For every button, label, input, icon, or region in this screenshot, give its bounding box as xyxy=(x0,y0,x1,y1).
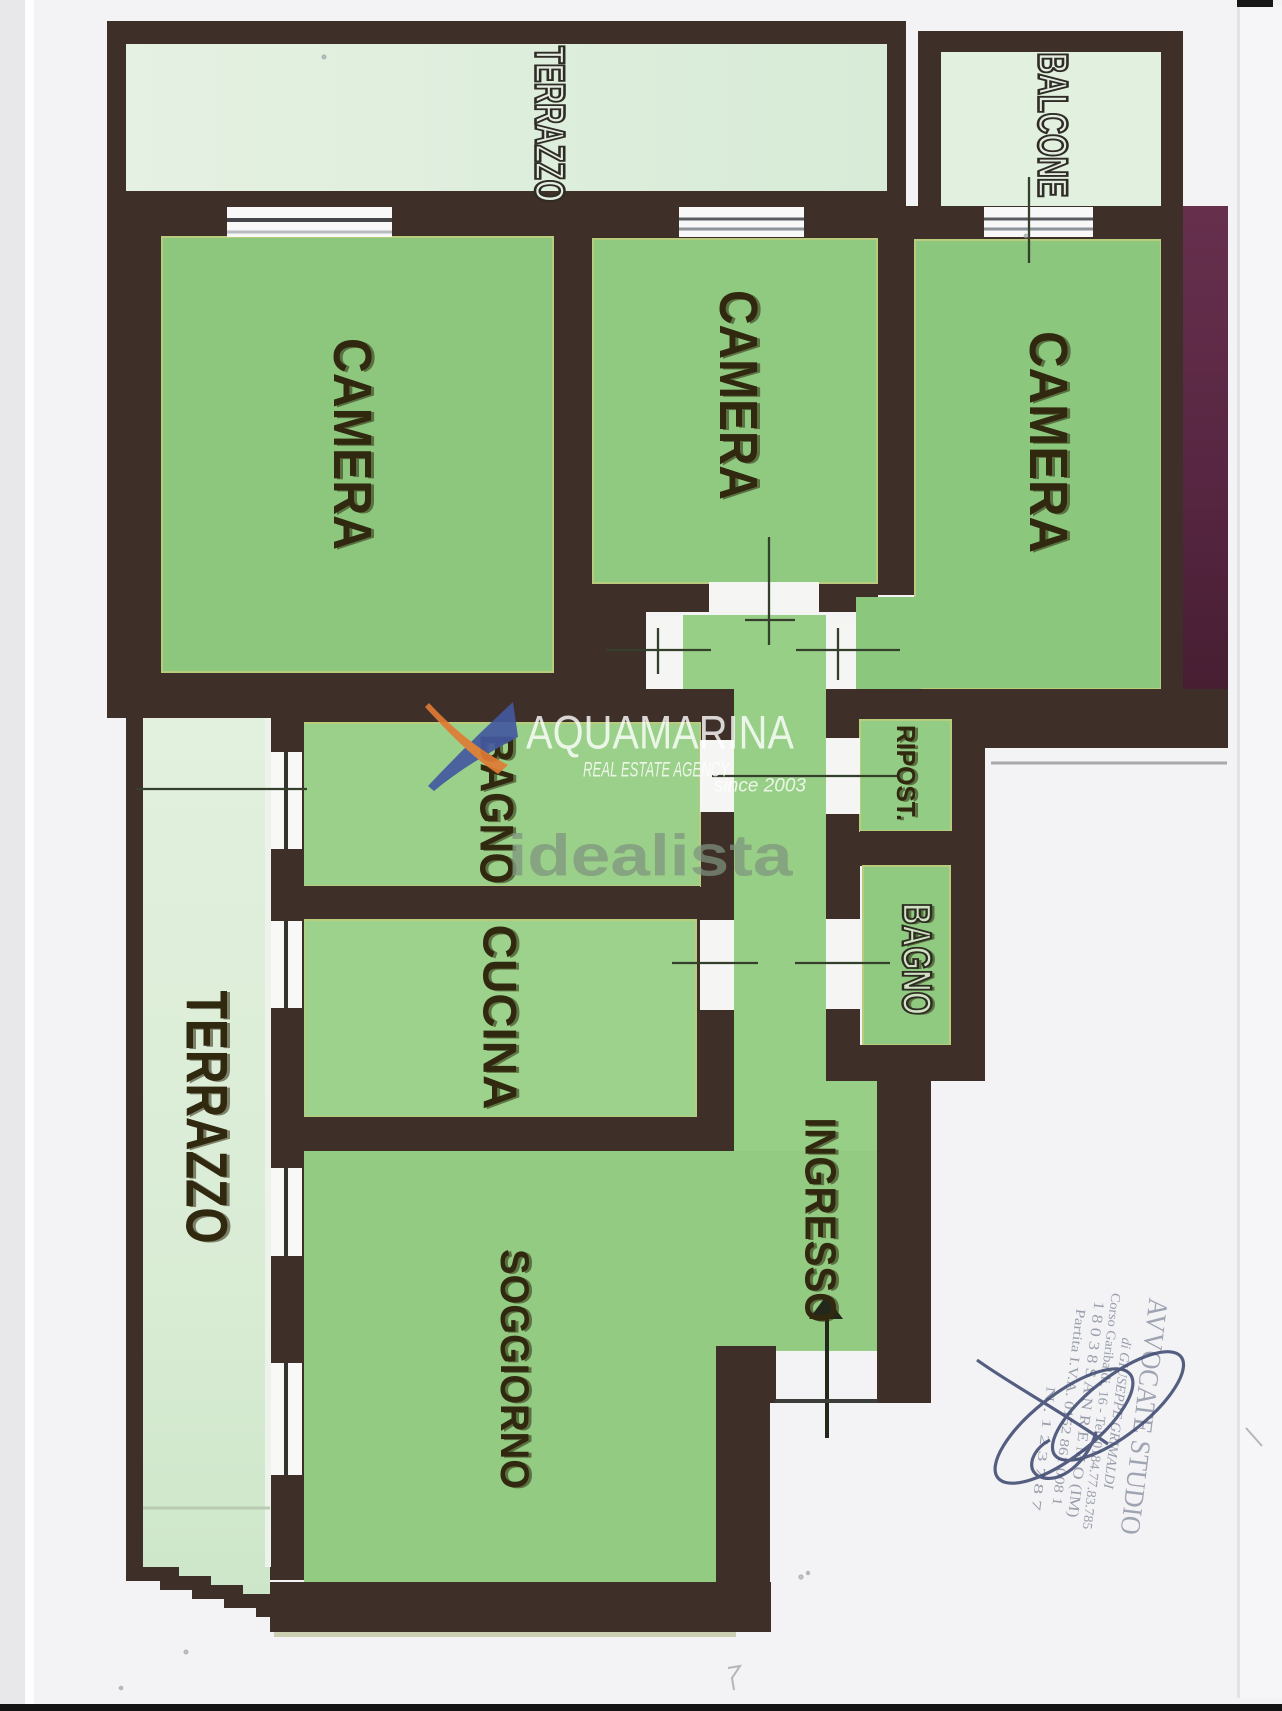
svg-text:CAMERA: CAMERA xyxy=(1018,331,1078,553)
svg-text:BAGNO: BAGNO xyxy=(894,903,940,1015)
svg-text:RIPOST.: RIPOST. xyxy=(891,725,921,821)
svg-text:idealista: idealista xyxy=(508,824,794,889)
svg-text:CAMERA: CAMERA xyxy=(708,290,768,500)
svg-text:CAMERA: CAMERA xyxy=(322,338,382,550)
svg-text:REAL ESTATE AGENCY: REAL ESTATE AGENCY xyxy=(583,759,730,782)
svg-text:SOGGIORNO: SOGGIORNO xyxy=(492,1249,536,1489)
svg-text:TERRAZZO: TERRAZZO xyxy=(174,991,239,1244)
svg-text:AQUAMARINA: AQUAMARINA xyxy=(526,706,795,759)
svg-text:since 2003: since 2003 xyxy=(714,776,806,797)
svg-text:INGRESSO: INGRESSO xyxy=(796,1118,845,1323)
svg-text:CUCINA: CUCINA xyxy=(474,925,527,1110)
svg-text:BALCONE: BALCONE xyxy=(1030,53,1077,198)
svg-text:TERRAZZO: TERRAZZO xyxy=(527,46,574,202)
